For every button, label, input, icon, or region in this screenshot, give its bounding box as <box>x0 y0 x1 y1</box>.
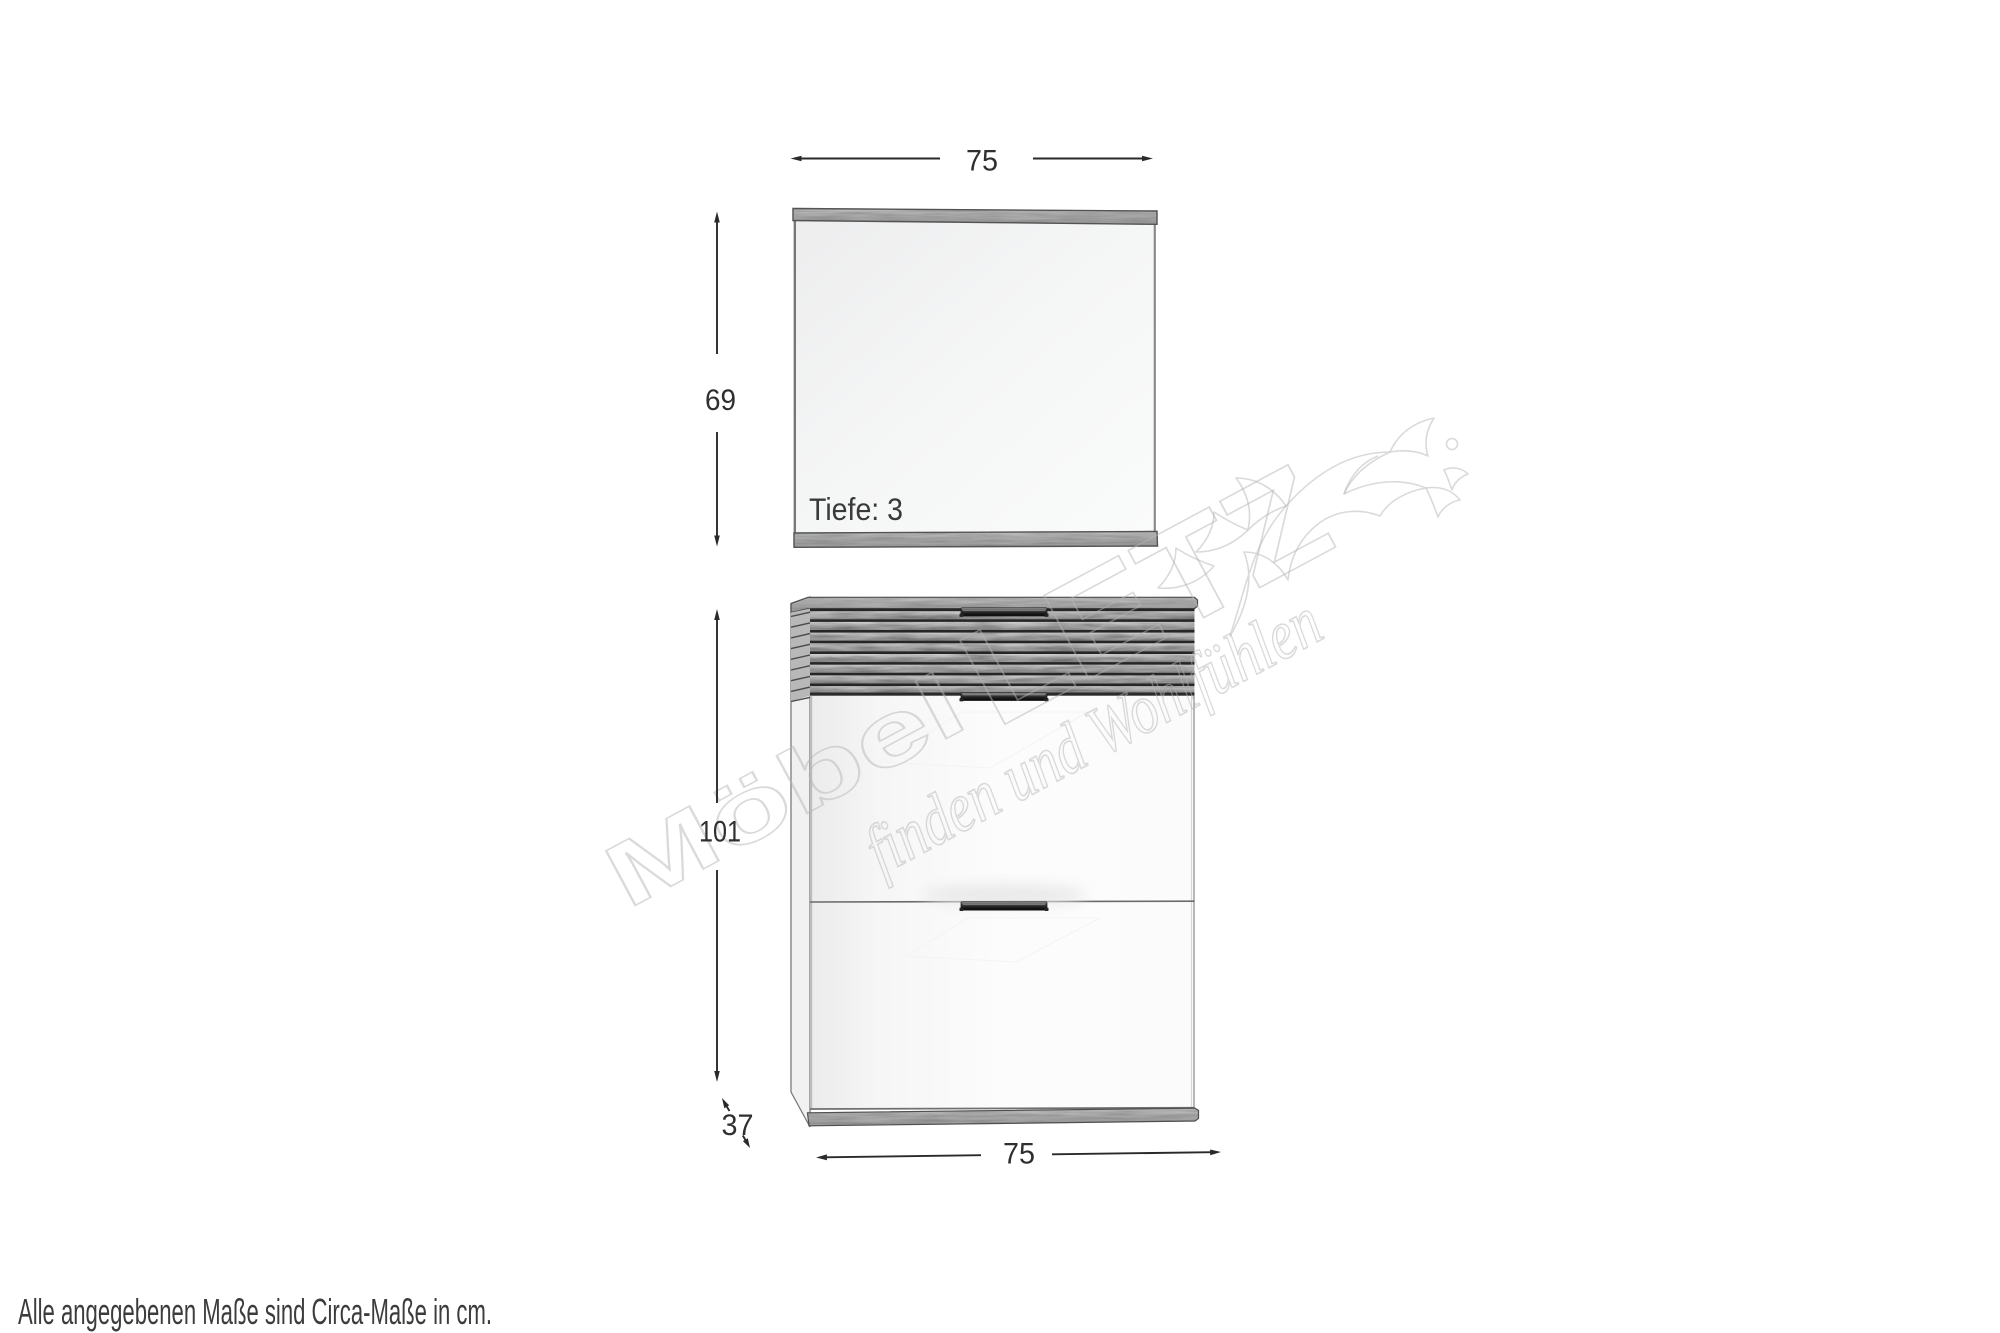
svg-text:69: 69 <box>705 384 736 417</box>
svg-text:75: 75 <box>966 145 998 178</box>
svg-text:Alle angegebenen Maße sind Cir: Alle angegebenen Maße sind Circa-Maße in… <box>18 1291 492 1332</box>
svg-text:101: 101 <box>699 816 741 849</box>
svg-text:75: 75 <box>1003 1138 1035 1171</box>
svg-text:37: 37 <box>722 1109 754 1142</box>
svg-text:Tiefe: 3: Tiefe: 3 <box>809 491 903 527</box>
